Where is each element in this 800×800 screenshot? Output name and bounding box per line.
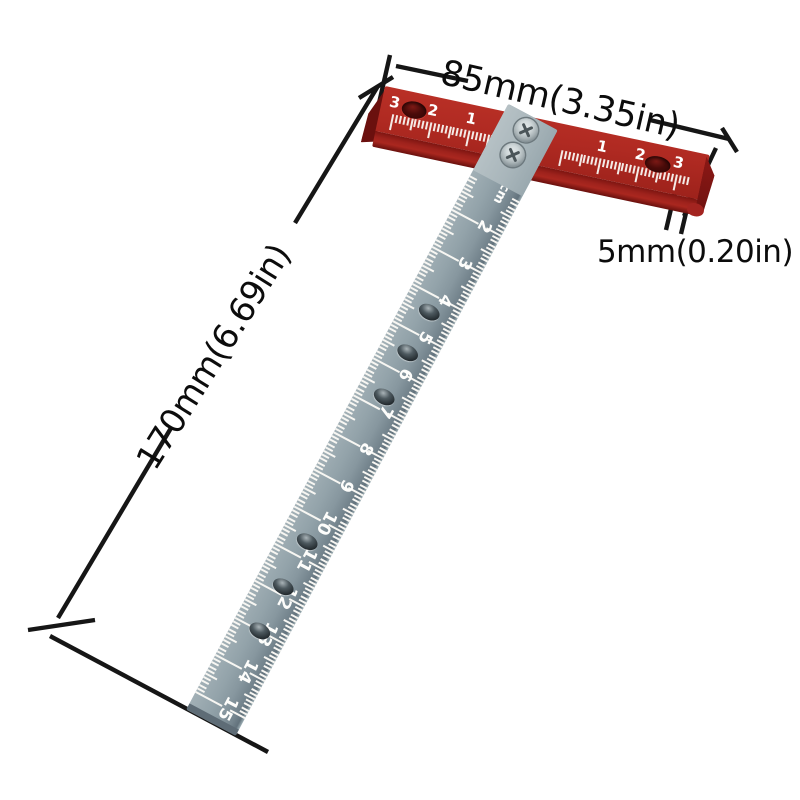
head-scale-number: 2 xyxy=(426,101,440,121)
head-tick xyxy=(409,118,413,130)
head-scale-number: 3 xyxy=(671,153,685,173)
head-tick xyxy=(578,154,582,166)
dimension-label-thickness: 5mm(0.20in) xyxy=(597,234,793,270)
screw xyxy=(497,139,529,171)
blade-hole xyxy=(394,341,420,365)
head-scale-number: 3 xyxy=(388,93,402,113)
head-scale-number: 1 xyxy=(595,137,609,157)
product-photo-tsquare-ruler: 3 2 1 1 2 3 1cm23456789101112131415 85mm… xyxy=(0,0,800,800)
head-scale-number: 1 xyxy=(464,109,478,129)
screw xyxy=(510,114,542,146)
head-tick xyxy=(686,177,690,185)
head-tick xyxy=(447,126,451,138)
head-tick xyxy=(616,162,620,174)
length-dimension-line xyxy=(28,77,393,752)
ruler-blade: 1cm23456789101112131415 xyxy=(186,104,558,736)
blade-hole xyxy=(294,530,320,554)
dimension-label-length: 170mm(6.69in) xyxy=(129,237,300,477)
